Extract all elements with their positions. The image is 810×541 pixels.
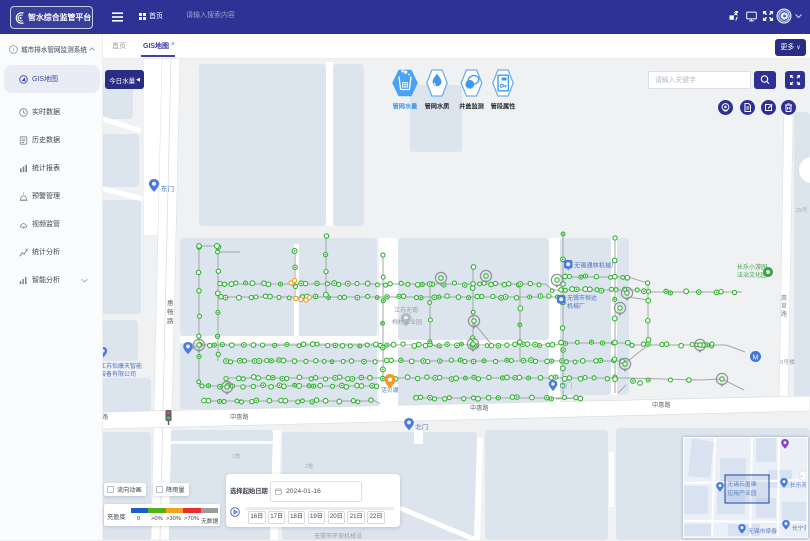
svg-text:装备有限公司: 装备有限公司 bbox=[102, 370, 136, 378]
svg-text:东门: 东门 bbox=[161, 184, 174, 193]
svg-text:梅村工业园: 梅村工业园 bbox=[392, 318, 422, 326]
svg-text:中惠路: 中惠路 bbox=[230, 413, 249, 421]
svg-text:‹: ‹ bbox=[801, 474, 803, 480]
svg-text:江苏无锡: 江苏无锡 bbox=[394, 306, 418, 314]
svg-text:中惠路: 中惠路 bbox=[652, 401, 671, 409]
svg-text:无锡市恒达: 无锡市恒达 bbox=[567, 294, 597, 302]
svg-text:长乐小游园: 长乐小游园 bbox=[737, 263, 767, 271]
svg-text:畅: 畅 bbox=[167, 307, 174, 316]
svg-text:路: 路 bbox=[167, 316, 174, 325]
svg-text:29号: 29号 bbox=[796, 207, 808, 214]
svg-text:应用产业园: 应用产业园 bbox=[728, 489, 757, 497]
svg-text:管段属性: 管段属性 bbox=[491, 103, 517, 111]
svg-text:i: i bbox=[13, 47, 14, 53]
svg-text:江苏怡康天智能: 江苏怡康天智能 bbox=[102, 362, 142, 370]
svg-text:北门: 北门 bbox=[415, 422, 428, 431]
svg-text:M: M bbox=[753, 355, 759, 362]
svg-text:草: 草 bbox=[781, 302, 787, 310]
svg-text:长宁苑: 长宁苑 bbox=[792, 524, 806, 532]
svg-text:无锡石墨烯: 无锡石墨烯 bbox=[728, 480, 757, 488]
svg-text:法治文化园: 法治文化园 bbox=[737, 271, 767, 279]
svg-text:长乐苑: 长乐苑 bbox=[790, 481, 806, 489]
svg-text:无锡市梁春: 无锡市梁春 bbox=[748, 527, 777, 535]
svg-text:1栋: 1栋 bbox=[232, 452, 241, 460]
svg-text:无锡通林机械厂: 无锡通林机械厂 bbox=[574, 262, 617, 270]
svg-text:井盖监测: 井盖监测 bbox=[459, 103, 484, 111]
svg-text:管网水质: 管网水质 bbox=[425, 103, 451, 111]
svg-text:无锡市环保机械设: 无锡市环保机械设 bbox=[314, 532, 362, 540]
svg-text:管网水量: 管网水量 bbox=[393, 103, 419, 111]
svg-text:9号楼: 9号楼 bbox=[780, 358, 795, 366]
svg-text:机械厂: 机械厂 bbox=[567, 302, 585, 310]
svg-text:南门: 南门 bbox=[560, 382, 572, 390]
svg-text:活贝湖: 活贝湖 bbox=[381, 386, 399, 394]
svg-text:2栋: 2栋 bbox=[305, 462, 314, 470]
svg-text:路: 路 bbox=[781, 310, 787, 318]
svg-text:惠: 惠 bbox=[781, 294, 787, 302]
svg-text:中惠路: 中惠路 bbox=[470, 404, 489, 412]
svg-text:惠: 惠 bbox=[167, 298, 174, 307]
svg-text:路: 路 bbox=[102, 413, 109, 421]
